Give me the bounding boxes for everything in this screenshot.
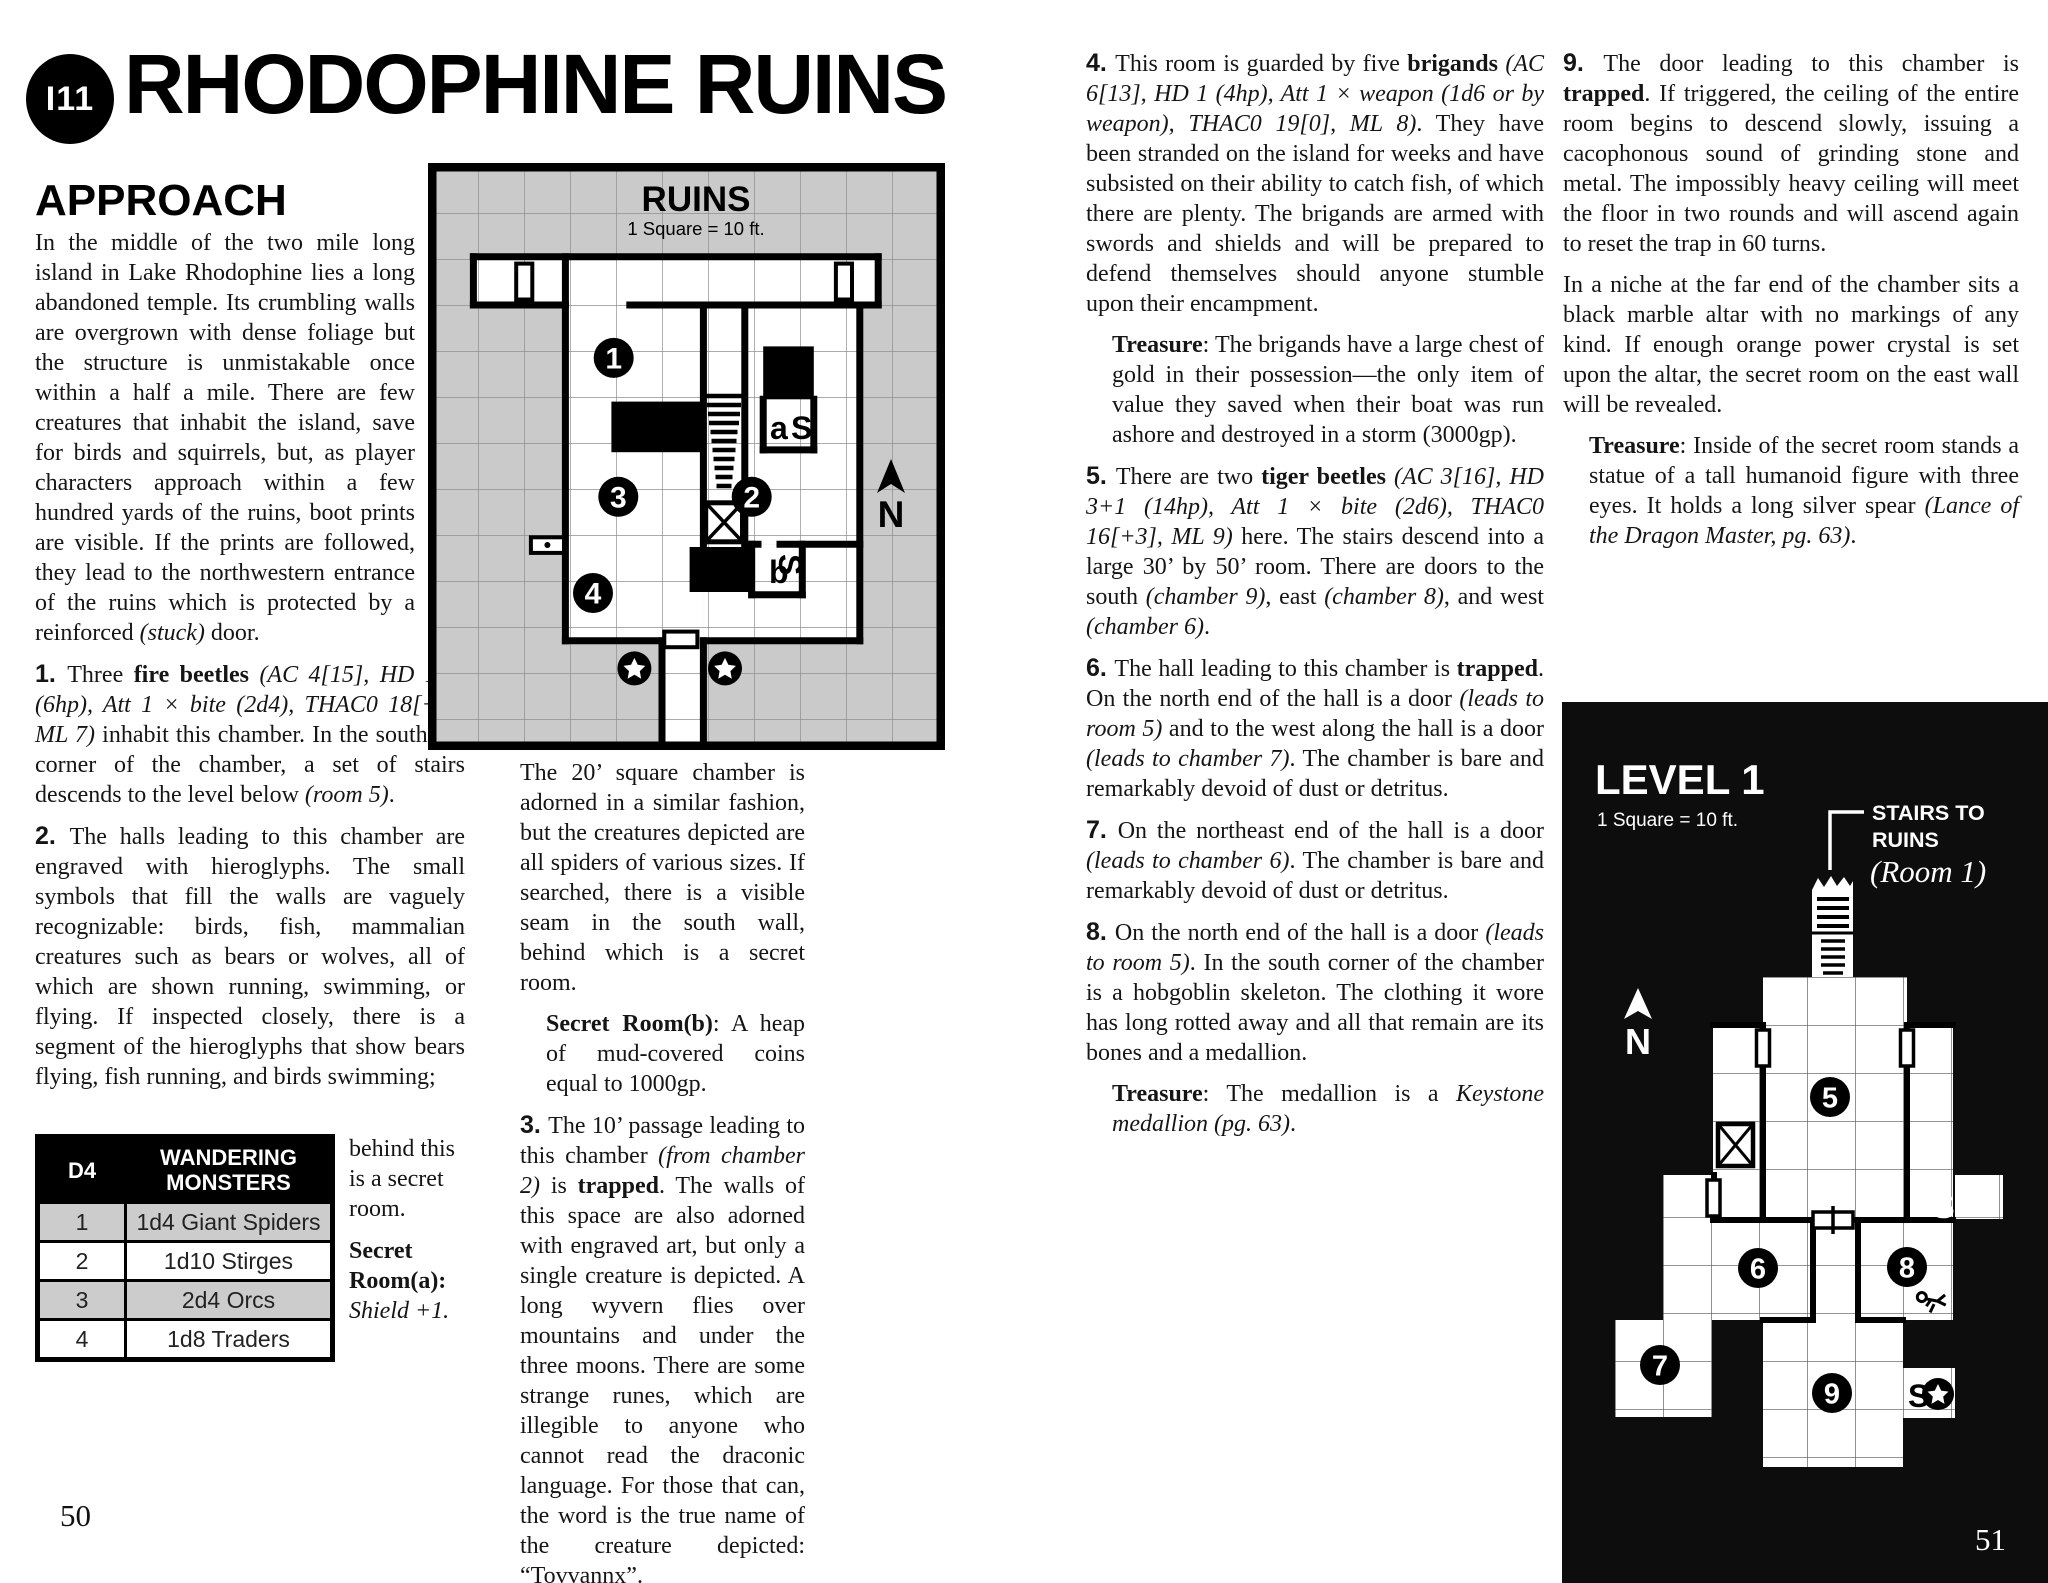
column-2: The 20’ square chamber is adorned in a s…	[520, 758, 805, 1583]
column-3: 4. This room is guarded by five brigands…	[1086, 48, 1544, 1150]
room-badge: 9	[1824, 1378, 1840, 1410]
secret-room-a-label: a	[770, 410, 788, 446]
level1-map: LEVEL 1 1 Square = 10 ft. STAIRS TO RUIN…	[1562, 702, 2048, 1583]
table-header-d4: D4	[38, 1137, 126, 1203]
page-number-left: 50	[60, 1498, 91, 1534]
table-cell-roll: 2	[38, 1242, 126, 1281]
paragraph: The 20’ square chamber is adorned in a s…	[520, 758, 805, 998]
table-cell-monster: 1d8 Traders	[126, 1320, 333, 1360]
book-spread: I11 RHODOPHINE RUINS APPROACH In the mid…	[0, 0, 2048, 1583]
paragraph: In the middle of the two mile long islan…	[35, 228, 415, 648]
table-cell-monster: 2d4 Orcs	[126, 1281, 333, 1320]
table-wrap-row: D4 WANDERING MONSTERS 1 1d4 Giant Spider…	[35, 1134, 465, 1362]
room-badge: 7	[1652, 1350, 1668, 1382]
ruins-map: N 1 2 3 4 a S S b RUINS 1 Square = 10 ft…	[428, 163, 945, 750]
column-1-entries: 1. Three fire beetles (AC 4[15], HD 1+2 …	[35, 659, 465, 1092]
paragraph: 2. The halls leading to this chamber are…	[35, 821, 465, 1092]
table-cell-monster: 1d10 Stirges	[126, 1242, 333, 1281]
table-row: 1 1d4 Giant Spiders	[38, 1203, 333, 1242]
table-row: 2 1d10 Stirges	[38, 1242, 333, 1281]
map-title: RUINS	[642, 180, 751, 219]
paragraph: 4. This room is guarded by five brigands…	[1086, 48, 1544, 319]
table-cell-roll: 3	[38, 1281, 126, 1320]
level1-map-panel: LEVEL 1 1 Square = 10 ft. STAIRS TO RUIN…	[1562, 702, 2048, 1583]
room-badge: 4	[585, 578, 602, 611]
table-cell-roll: 4	[38, 1320, 126, 1360]
map-scale: 1 Square = 10 ft.	[627, 218, 764, 239]
room-badge: 3	[610, 482, 627, 515]
page-title: RHODOPHINE RUINS	[124, 36, 946, 133]
paragraph: 7. On the northeast end of the hall is a…	[1086, 815, 1544, 906]
map-title: LEVEL 1	[1595, 756, 1765, 803]
paragraph: Treasure: Inside of the secret room stan…	[1589, 431, 2019, 551]
paragraph: In a niche at the far end of the chamber…	[1563, 270, 2019, 420]
table-cell-roll: 1	[38, 1203, 126, 1242]
north-label: N	[878, 494, 905, 535]
paragraph: Secret Room(a): Shield +1.	[349, 1236, 465, 1326]
room-badge: 5	[1822, 1082, 1838, 1114]
table-header-row: D4 WANDERING MONSTERS	[38, 1137, 333, 1203]
paragraph: 5. There are two tiger beetles (AC 3[16]…	[1086, 461, 1544, 642]
column-1: In the middle of the two mile long islan…	[35, 228, 465, 1362]
secret-door-label: S	[1932, 1188, 1955, 1226]
paragraph: 1. Three fire beetles (AC 4[15], HD 1+2 …	[35, 659, 465, 810]
table-row: 4 1d8 Traders	[38, 1320, 333, 1360]
secret-room-b-label: b	[769, 554, 789, 590]
module-code-badge: I11	[26, 54, 114, 144]
wandering-monsters-table-wrap: D4 WANDERING MONSTERS 1 1d4 Giant Spider…	[35, 1134, 335, 1362]
map-scale: 1 Square = 10 ft.	[1597, 810, 1738, 831]
room-badge: 8	[1899, 1252, 1915, 1284]
secret-star-icon	[1922, 1378, 1954, 1410]
module-code: I11	[46, 80, 94, 118]
approach-heading: APPROACH	[35, 176, 287, 226]
table-header-monsters: WANDERING MONSTERS	[126, 1137, 333, 1203]
paragraph: 8. On the north end of the hall is a doo…	[1086, 917, 1544, 1068]
room-badge: 1	[605, 343, 622, 376]
column-4: 9. The door leading to this chamber is t…	[1563, 48, 2019, 562]
page-number-right: 51	[1975, 1522, 2006, 1558]
stairs-icon	[1812, 876, 1853, 979]
trapdoor-icon	[1718, 1124, 1753, 1166]
table-row: 3 2d4 Orcs	[38, 1281, 333, 1320]
paragraph: behind this is a secret room.	[349, 1134, 465, 1224]
paragraph: Treasure: The medallion is a Keystone me…	[1112, 1079, 1544, 1139]
wandering-monsters-table: D4 WANDERING MONSTERS 1 1d4 Giant Spider…	[35, 1134, 335, 1362]
paragraph: Secret Room(b): A heap of mud-covered co…	[546, 1009, 805, 1099]
callout-line1: STAIRS TO	[1872, 801, 1985, 825]
door-pivot-dot	[544, 542, 550, 548]
approach-paragraph: In the middle of the two mile long islan…	[35, 228, 465, 648]
paragraph: 3. The 10’ passage leading to this chamb…	[520, 1110, 805, 1583]
paragraph: Treasure: The brigands have a large ches…	[1112, 330, 1544, 450]
room-badge: 2	[743, 482, 760, 515]
room-badge: 6	[1750, 1253, 1766, 1285]
table-cell-monster: 1d4 Giant Spiders	[126, 1203, 333, 1242]
secret-door-label: S	[791, 410, 812, 446]
north-label: N	[1625, 1021, 1651, 1062]
callout-line2: RUINS	[1872, 828, 1939, 852]
paragraph: 9. The door leading to this chamber is t…	[1563, 48, 2019, 259]
callout-room-ref: (Room 1)	[1870, 854, 1986, 889]
table-side-text: behind this is a secret room.Secret Room…	[349, 1134, 465, 1362]
paragraph: 6. The hall leading to this chamber is t…	[1086, 653, 1544, 804]
